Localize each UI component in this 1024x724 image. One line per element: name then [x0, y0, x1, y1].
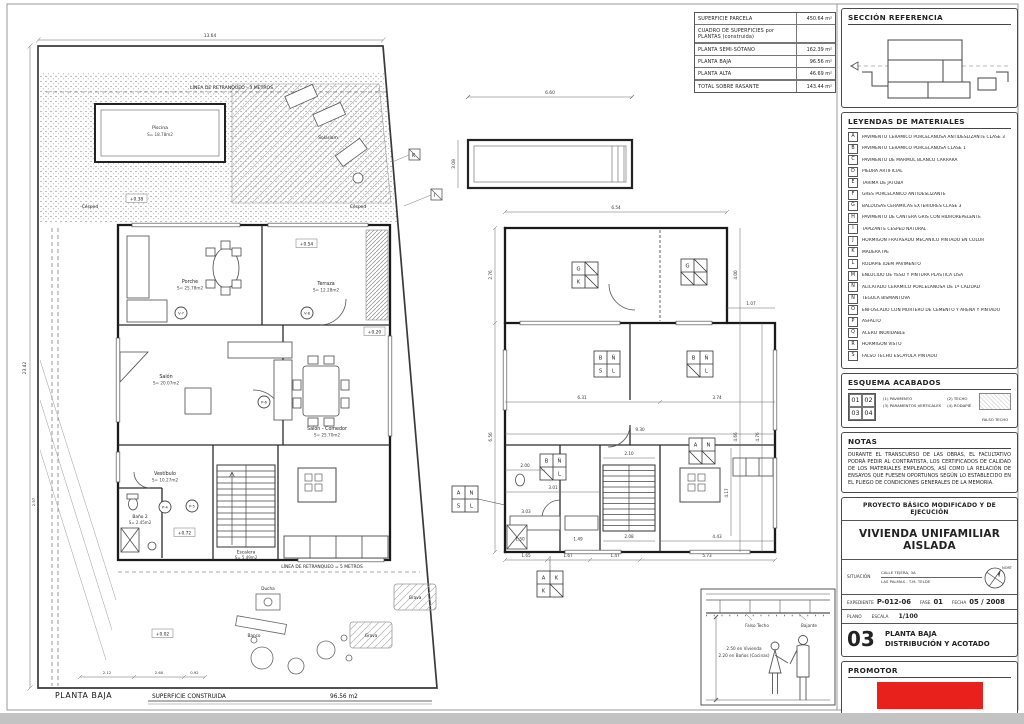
pool-dim-w: 6.60: [545, 90, 555, 96]
table-cell-label: PLANTA ALTA: [695, 68, 796, 79]
legend-item: QACERO INOXIDABLE: [848, 328, 1011, 338]
situacion-line1: CALLE TEJERA, 3A: [881, 569, 982, 578]
section-sketch: [848, 28, 1011, 102]
rp-dim-top: 6.54: [611, 205, 621, 210]
plano-title-1: PLANTA BAJA: [885, 629, 990, 639]
fb3-tl: B: [599, 356, 603, 362]
terraza-label: Terraza: [316, 281, 334, 287]
legend-text: MADERA IPE: [862, 250, 889, 255]
table-cell-label: SUPERFICIE PARCELA: [695, 13, 796, 24]
rp-dim-lower-top: 9.30: [635, 427, 645, 432]
rp-dim-149: 1.49: [573, 537, 583, 542]
legend-key: E: [848, 178, 858, 188]
notas-title: NOTAS: [848, 437, 1011, 449]
ref-tag-p5: P-5: [189, 504, 195, 508]
legend-text: PAVIMENTO CERÁMICO PORCELANOSA CLASE 1: [862, 146, 966, 151]
fb3-tr: Ñ: [612, 355, 616, 362]
fb5-tr: Ñ: [558, 458, 562, 465]
rp-dim-right-mid: 4.66: [733, 432, 738, 442]
legend-key: G: [848, 201, 858, 211]
north-compass-icon: NORTE: [982, 563, 1012, 591]
grava2-label: Grava: [365, 633, 378, 638]
legend-item: ETARIMA DE JATOBA: [848, 178, 1011, 188]
legend-label: PAVIMENTO: [890, 396, 912, 401]
project-type: PROYECTO BÁSICO MODIFICADO Y DE EJECUCIÓ…: [842, 498, 1017, 521]
situacion-line2: LAS PALMAS - T.M. TELDE: [881, 578, 982, 586]
legend-label: RODAPIÉ: [954, 403, 971, 408]
table-cell-value: 46.69 m²: [796, 68, 835, 79]
plano-title-2: DISTRIBUCIÓN Y ACOTADO: [885, 639, 990, 649]
legend-key: P: [848, 317, 858, 327]
legend-item: HPAVIMENTO DE CANTERA GRIS CON HIDROREPE…: [848, 213, 1011, 223]
dim-b2: 2.60: [155, 670, 164, 675]
rp-dim-bottom4: 5.73: [702, 553, 712, 558]
legend-item: NALICATADO CERÁMICO PORCELANOSA DE 1ª CA…: [848, 282, 1011, 292]
table-cell-value: 96.56 m²: [796, 56, 835, 67]
table-cell-label: CUADRO DE SUPERFICIES por PLANTAS (const…: [695, 25, 796, 42]
fb7-tr: N: [470, 491, 474, 497]
legend-item: RHORMIGÓN VISTO: [848, 340, 1011, 350]
plano-label: PLANO: [847, 615, 862, 620]
table-cell-label: PLANTA SEMI-SÓTANO: [695, 44, 796, 55]
plan-footer-label: SUPERFICIE CONSTRUIDA: [152, 694, 226, 700]
legend-num: (1): [883, 396, 889, 401]
banco-label: Banco: [248, 633, 261, 638]
ceiling-detail: Falso Techo Bajante 2.50 en Vivienda 2.2…: [701, 589, 835, 705]
leyendas-title: LEYENDAS DE MATERIALES: [848, 117, 1011, 129]
table-cell-value: 450.64 m²: [796, 13, 835, 24]
dim-top: 13.64: [204, 33, 217, 39]
surface-table: SUPERFICIE PARCELA 450.64 m² CUADRO DE S…: [694, 12, 836, 93]
legend-key: S: [848, 351, 858, 361]
legend-key: F: [848, 190, 858, 200]
legend-text: TAPIZANTE CÉSPED NATURAL: [862, 227, 926, 232]
falso-techo-swatch-label: FALSO TECHO: [979, 417, 1011, 422]
height-note-2: 2.20 en Baños (Cocinas): [718, 653, 769, 658]
seccion-referencia-title: SECCIÓN REFERENCIA: [848, 13, 1011, 25]
table-cell-value: 162.39 m²: [796, 44, 835, 55]
table-row: PLANTA SEMI-SÓTANO 162.39 m²: [695, 44, 835, 56]
grava1-label: Grava: [409, 595, 422, 600]
rp-dim-150: 1.50: [515, 537, 525, 542]
legend-key: D: [848, 167, 858, 177]
situacion-label: SITUACIÓN: [847, 575, 881, 580]
escala-value: 1/100: [898, 613, 917, 620]
rp-dim-left: 6.56: [488, 432, 493, 442]
legend-item: JHORMIGÓN FRATASADO MECÁNICO PINTADO EN …: [848, 236, 1011, 246]
legend-text: ACERO INOXIDABLE: [862, 331, 905, 336]
plan-title: PLANTA BAJA: [55, 691, 112, 700]
dim-b3: 0.92: [190, 670, 199, 675]
legend-text: HORMIGÓN FRATASADO MECÁNICO PINTADO EN C…: [862, 238, 984, 243]
legend-text: TEGOLA BISMANTOVA: [862, 296, 910, 301]
esquema-acabados-panel: ESQUEMA ACABADOS 01 02 03 04 (1) PAVIMEN…: [841, 373, 1018, 428]
legend-text: PAVIMENTO DE CANTERA GRIS CON HIDROREPEL…: [862, 215, 981, 220]
fb5-tl: B: [545, 459, 549, 465]
comedor-label: Salón - Comedor: [307, 425, 347, 432]
bano-area: S= 2.45m2: [129, 520, 152, 525]
vestibulo-label: Vestíbulo: [154, 470, 176, 477]
falso-techo-swatch: [979, 393, 1011, 410]
porche-label: Porche: [182, 279, 198, 285]
legend-key: B: [848, 144, 858, 154]
height-note-1: 2.50 en Vivienda: [726, 646, 762, 651]
legend-key: R: [848, 340, 858, 350]
legend-item: BPAVIMENTO CERÁMICO PORCELANOSA CLASE 1: [848, 144, 1011, 154]
comedor-area: S= 25.70m2: [314, 433, 341, 438]
legend-key: C: [848, 155, 858, 165]
bajante-label: Bajante: [801, 623, 817, 628]
plan-footer-value: 96.56 m2: [330, 694, 358, 700]
legend-text: HORMIGÓN VISTO: [862, 342, 902, 347]
garden-objects: [236, 584, 436, 674]
fb8-bl: K: [542, 589, 546, 595]
table-row: TOTAL SOBRE RASANTE 143.44 m²: [695, 81, 835, 92]
esquema-legend-item: (3) PARAMENTOS VERTICALES: [883, 403, 941, 408]
legend-key: M: [848, 271, 858, 281]
pool-dim-h: 3.08: [451, 159, 457, 169]
legend-item: GBALDOSAS CERÁMICAS EXTERIORES CLASE 3: [848, 201, 1011, 211]
promotor-redaction: [877, 682, 983, 709]
table-cell-label: PLANTA BAJA: [695, 56, 796, 67]
tag-i: I: [434, 193, 435, 199]
legend-text: ALICATADO CERÁMICO PORCELANOSA DE 1ª CAL…: [862, 285, 980, 290]
notas-panel: NOTAS DURANTE EL TRANSCURSO DE LAS OBRAS…: [841, 432, 1018, 494]
rp-dim-bottom3: 1.47: [610, 553, 620, 558]
windows: [116, 223, 392, 562]
fb8-tr: K: [555, 576, 559, 582]
table-row: SUPERFICIE PARCELA 450.64 m²: [695, 13, 835, 25]
ref-tag-p4: P-4: [162, 505, 168, 509]
level-marks: +0.38 +0.54 +0.20 +0.72 +0.02: [126, 194, 385, 638]
esquema-legend: (1) PAVIMENTO (2) TECHO (3) PARAMENTOS V…: [883, 393, 972, 408]
fase-label: FASE: [920, 601, 930, 606]
expediente-label: EXPEDIENTE: [847, 601, 874, 606]
table-row: PLANTA BAJA 96.56 m²: [695, 56, 835, 68]
solarium-deck: [232, 84, 391, 203]
vestibulo-area: S= 10.27m2: [152, 478, 179, 483]
salon-area: S= 20.07m2: [153, 381, 180, 386]
level-072: +0.72: [178, 531, 192, 537]
rp-dim-417: 4.17: [724, 488, 729, 498]
esquema-legend-item: (1) PAVIMENTO: [883, 396, 941, 401]
stair: [217, 465, 275, 547]
solarium-label: Solarium: [318, 135, 337, 141]
legend-key: H: [848, 213, 858, 223]
fb6-tr: N: [707, 443, 711, 449]
rp-dim-bottom2: 1.67: [563, 553, 573, 558]
legend-item: APAVIMENTO CERÁMICO PORCELANOSA ANTIDESL…: [848, 132, 1011, 142]
legend-item: SFALSO TECHO ESCAYOLA PINTADO: [848, 351, 1011, 361]
escala-label: ESCALA: [872, 615, 889, 620]
terrain-contours: [40, 360, 116, 660]
rp-dim-mid1: 6.31: [577, 395, 587, 400]
legend-item: MENLUCIDO DE YESO Y PINTURA PLÁSTICA LIS…: [848, 271, 1011, 281]
legend-text: PAVIMENTO DE MÁRMOL BLANCO CARRARA: [862, 158, 958, 163]
rp-doors: [542, 284, 635, 518]
fb1-tl: G: [576, 267, 580, 273]
pool-plan: 6.60 3.08: [451, 90, 634, 188]
rp-dim-right-outer: 4.76: [755, 432, 760, 442]
esquema-cell: 01: [849, 394, 862, 407]
legend-key: I: [848, 224, 858, 234]
setback-top-label: LÍNEA DE RETRANQUEO - 3 METROS: [190, 84, 273, 91]
legend-key: N: [848, 282, 858, 292]
right-column: SECCIÓN REFERENCIA LEYEN: [841, 8, 1018, 724]
dim-left: 23.42: [22, 362, 28, 375]
table-cell-value: [796, 25, 835, 42]
ducha-label: Ducha: [261, 586, 275, 591]
level-054: +0.54: [300, 242, 314, 248]
norte-label: NORTE: [1002, 566, 1012, 570]
fb8-tl: A: [542, 576, 546, 582]
material-tags: K I: [392, 149, 442, 206]
legend-item: ÑTEGOLA BISMANTOVA: [848, 294, 1011, 304]
title-block: PROYECTO BÁSICO MODIFICADO Y DE EJECUCIÓ…: [841, 497, 1018, 657]
fb7-tl: A: [457, 491, 461, 497]
plano-number: 03: [847, 627, 885, 651]
legend-key: O: [848, 305, 858, 315]
situacion-value: CALLE TEJERA, 3A LAS PALMAS - T.M. TELDE: [881, 569, 982, 586]
legend-item: FGRES PORCELÁNICO ANTIDESLIZANTE: [848, 190, 1011, 200]
terraza-area: S= 12.28m2: [313, 288, 340, 293]
promotor-title: PROMOTOR: [848, 666, 1011, 678]
legend-num: (2): [947, 396, 953, 401]
rp-dim-offset: 1.07: [746, 301, 756, 306]
piscina-area: S= 18.78m2: [147, 132, 173, 137]
rp-dim-mid2: 3.74: [712, 395, 722, 400]
esquema-legend-item: (4) RODAPIÉ: [947, 403, 972, 408]
fb1-bl: K: [577, 280, 581, 286]
legend-text: RODAPIÉ IDEM PAVIMENTO: [862, 262, 921, 267]
rp-dim-303: 3.03: [521, 509, 531, 514]
notas-body: DURANTE EL TRANSCURSO DE LAS OBRAS, EL F…: [848, 452, 1011, 488]
fb4-br: L: [705, 369, 708, 375]
legend-label: PARAMENTOS VERTICALES: [890, 403, 941, 408]
legend-label: TECHO: [954, 396, 968, 401]
legend-text: ASFALTO: [862, 319, 881, 324]
legend-num: (3): [883, 403, 889, 408]
salon-label: Salón: [159, 373, 172, 380]
house-partitions: [118, 225, 390, 560]
page-edge: [0, 713, 1024, 724]
table-row: PLANTA ALTA 46.69 m²: [695, 68, 835, 81]
ref-tag-v8: V-8: [304, 311, 311, 315]
legend-text: PAVIMENTO CERÁMICO PORCELANOSA ANTIDESLI…: [862, 135, 1005, 140]
legend-item: PASFALTO: [848, 317, 1011, 327]
rp-stair: [603, 465, 655, 531]
fb2-tl: G: [685, 264, 689, 270]
legend-key: A: [848, 132, 858, 142]
fb7-br: L: [470, 504, 473, 510]
legend-text: ENFOSCADO CON MORTERO DE CEMENTO Y ARENA…: [862, 308, 1000, 313]
legend-item: DPIEDRA ARTIFICIAL: [848, 167, 1011, 177]
legend-key: J: [848, 236, 858, 246]
legend-key: L: [848, 259, 858, 269]
table-cell-value: 143.44 m²: [796, 81, 835, 92]
legend-item: KMADERA IPE: [848, 247, 1011, 257]
terraza-planter: [366, 230, 388, 320]
esquema-title: ESQUEMA ACABADOS: [848, 378, 1011, 390]
leyendas-panel: LEYENDAS DE MATERIALES APAVIMENTO CERÁMI…: [841, 112, 1018, 369]
ref-tag-v7: V-7: [178, 311, 184, 315]
falso-techo-label: Falso Techo: [745, 623, 769, 628]
rp-dim-stair-bottom: 2.08: [624, 534, 634, 539]
finish-boxes: [452, 259, 715, 597]
legend-text: PIEDRA ARTIFICIAL: [862, 169, 903, 174]
legend-item: LRODAPIÉ IDEM PAVIMENTO: [848, 259, 1011, 269]
fb4-tr: Ñ: [705, 355, 709, 362]
legend-key: K: [848, 247, 858, 257]
fb3-br: L: [612, 369, 615, 375]
fb5-br: L: [558, 472, 561, 478]
site-plan: K I V-7 V-8 P-6 P-4 P-5 +0.38: [22, 33, 442, 704]
cesped-right-label: Césped: [350, 203, 367, 210]
rp-dim-right-upper: 4.00: [733, 270, 738, 280]
legend-text: GRES PORCELÁNICO ANTIDESLIZANTE: [862, 192, 946, 197]
dim-b1: 2.12: [103, 670, 112, 675]
legend-item: OENFOSCADO CON MORTERO DE CEMENTO Y AREN…: [848, 305, 1011, 315]
fb7-bl: S: [457, 504, 460, 510]
fecha-value: 05 / 2008: [969, 598, 1005, 606]
setback-bottom-label: LÍNEA DE RETRANQUEO = 5 METROS: [281, 563, 363, 570]
legend-key: Ñ: [848, 294, 858, 304]
esquema-grid: 01 02 03 04: [848, 393, 876, 421]
rp-dim-stair-top: 2.10: [624, 451, 634, 456]
legend-item: ITAPIZANTE CÉSPED NATURAL: [848, 224, 1011, 234]
fecha-label: FECHA: [952, 601, 966, 606]
esquema-cell: 03: [849, 407, 862, 420]
drawing-sheet: K I V-7 V-8 P-6 P-4 P-5 +0.38: [0, 0, 1024, 724]
piscina-label: Piscina: [152, 125, 168, 131]
esquema-legend-item: (2) TECHO: [947, 396, 972, 401]
legend-text: FALSO TECHO ESCAYOLA PINTADO: [862, 354, 937, 359]
esquema-cell: 04: [862, 407, 875, 420]
house-walls: [118, 225, 390, 560]
seccion-referencia-panel: SECCIÓN REFERENCIA: [841, 8, 1018, 108]
legend-text: BALDOSAS CERÁMICAS EXTERIORES CLASE 3: [862, 204, 961, 209]
expediente-value: P-012-06: [877, 598, 911, 606]
dim-seg: 2.97: [31, 497, 36, 506]
level-002: +0.02: [156, 632, 170, 638]
rp-dim-301: 3.01: [548, 485, 558, 490]
fb6-tl: A: [694, 443, 698, 449]
level-020: +0.20: [368, 330, 382, 336]
promotor-panel: PROMOTOR: [841, 661, 1018, 717]
level-038: +0.38: [130, 197, 144, 203]
fb3-bl: S: [599, 369, 602, 375]
rp-dim-200: 2.00: [520, 463, 530, 468]
legend-key: Q: [848, 328, 858, 338]
table-cell-label: TOTAL SOBRE RASANTE: [695, 81, 796, 92]
porche-area: S= 25.78m2: [177, 286, 204, 291]
legend-text: TARIMA DE JATOBA: [862, 181, 903, 186]
esquema-cell: 02: [862, 394, 875, 407]
rp-dim-left-upper: 2.76: [488, 270, 493, 280]
legend-text: ENLUCIDO DE YESO Y PINTURA PLÁSTICA LISA: [862, 273, 963, 278]
rp-dim-443: 4.43: [712, 534, 722, 539]
ref-tag-p6: P-6: [261, 400, 267, 404]
legend-num: (4): [947, 403, 953, 408]
table-row: CUADRO DE SUPERFICIES por PLANTAS (const…: [695, 25, 835, 44]
rp-dim-bottom1: 1.65: [521, 553, 531, 558]
project-name: VIVIENDA UNIFAMILIAR AISLADA: [842, 521, 1017, 560]
fase-value: 01: [933, 598, 942, 606]
dimensioned-plan: G K G B Ñ S L B Ñ L B Ñ L A N A N S L A: [452, 205, 777, 597]
legend-item: CPAVIMENTO DE MÁRMOL BLANCO CARRARA: [848, 155, 1011, 165]
fb4-tl: B: [692, 356, 696, 362]
escalera-area: S= 5.49m2: [235, 555, 258, 560]
cesped-left-label: Césped: [82, 203, 99, 210]
